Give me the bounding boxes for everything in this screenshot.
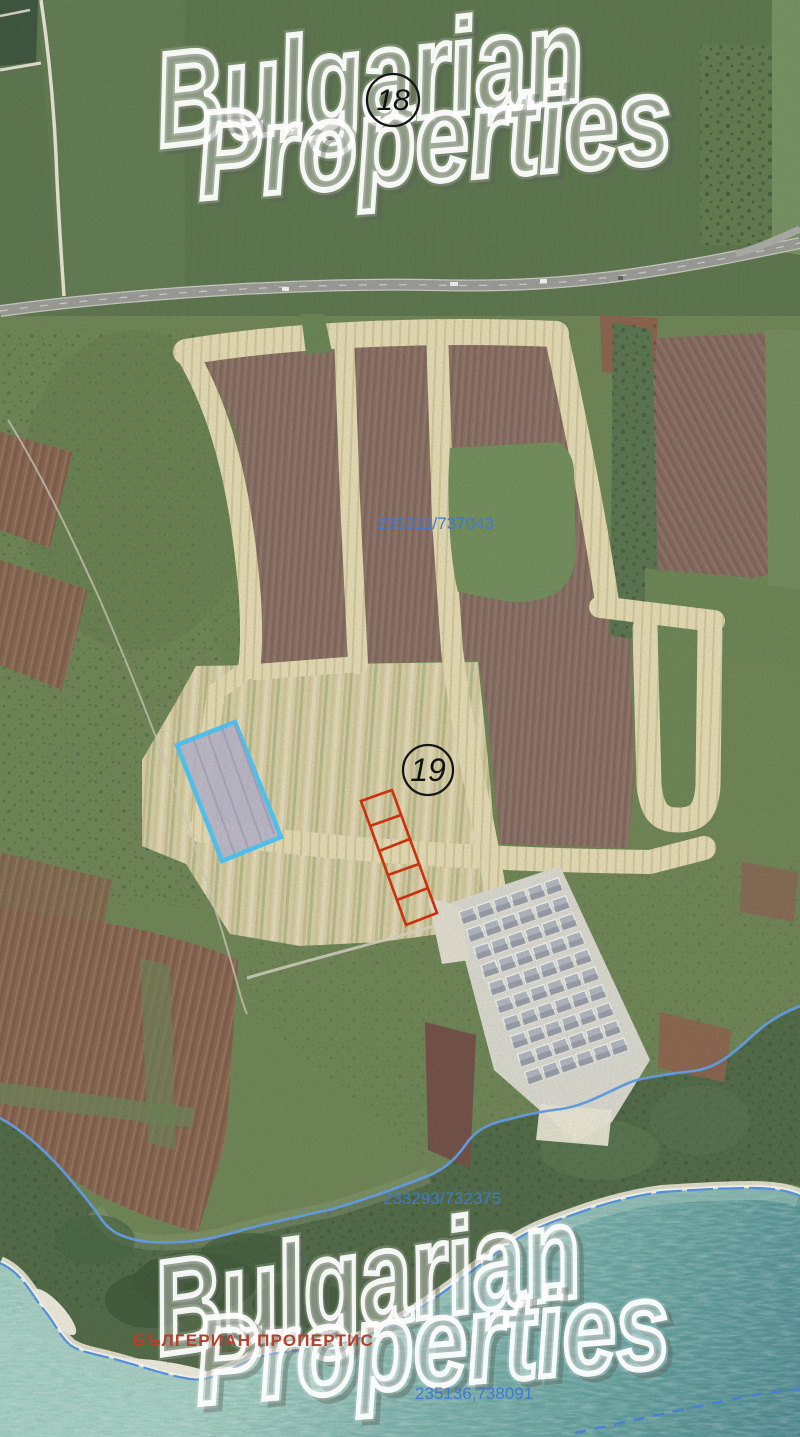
svg-text:233293/732375: 233293/732375 [383, 1189, 501, 1208]
svg-text:235136,738091: 235136,738091 [415, 1384, 533, 1403]
svg-text:БЪЛГЕРИАН ПРОПЕРТИС: БЪЛГЕРИАН ПРОПЕРТИС [133, 1331, 374, 1350]
svg-text:19: 19 [410, 752, 446, 788]
svg-text:235311/737043: 235311/737043 [377, 514, 494, 533]
svg-text:18: 18 [376, 84, 410, 117]
